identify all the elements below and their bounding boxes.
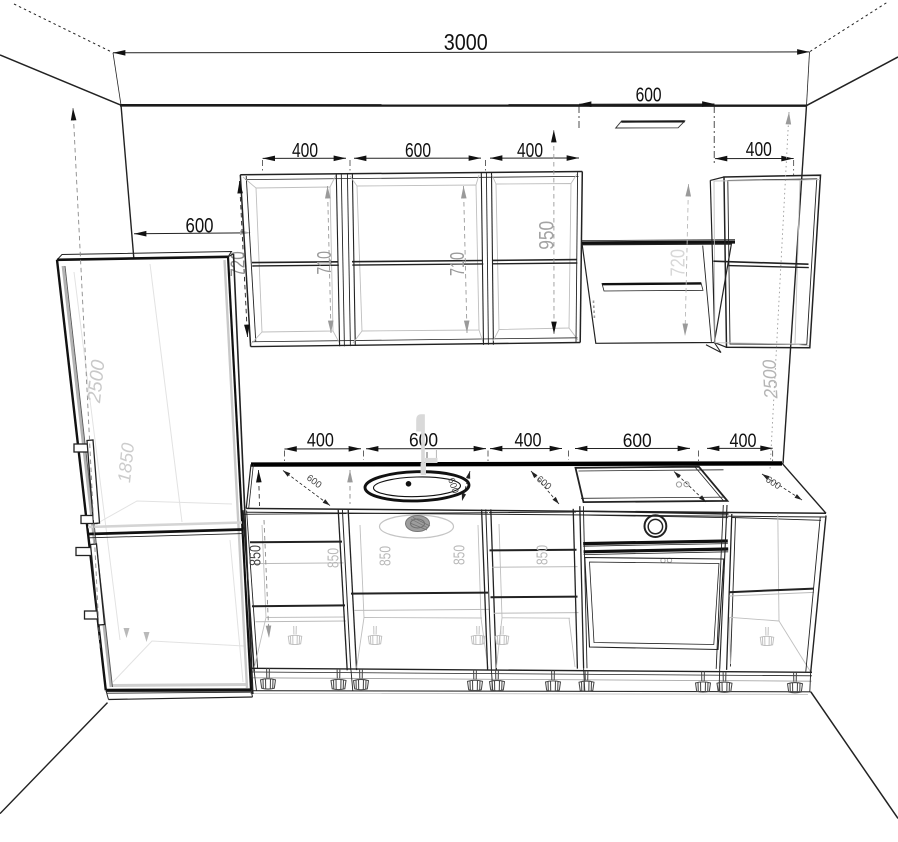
svg-text:400: 400	[515, 430, 542, 451]
svg-text:850: 850	[378, 546, 395, 566]
svg-text:2500: 2500	[759, 359, 782, 400]
svg-text:850: 850	[326, 548, 343, 568]
svg-text:850: 850	[248, 545, 265, 566]
svg-text:720: 720	[668, 249, 690, 277]
svg-text:400: 400	[730, 431, 757, 452]
svg-text:710: 710	[447, 252, 469, 276]
svg-text:600: 600	[186, 214, 214, 237]
svg-text:400: 400	[746, 139, 772, 161]
svg-text:1850: 1850	[114, 442, 138, 484]
svg-text:400: 400	[517, 140, 543, 162]
svg-text:710: 710	[314, 251, 336, 275]
svg-text:950: 950	[535, 221, 558, 250]
svg-text:400: 400	[292, 140, 318, 162]
svg-text:400: 400	[307, 431, 334, 452]
svg-text:3000: 3000	[444, 29, 488, 55]
svg-text:600: 600	[636, 85, 662, 107]
svg-text:600: 600	[623, 431, 652, 452]
svg-text:850: 850	[452, 545, 469, 565]
svg-text:850: 850	[535, 545, 552, 565]
svg-text:600: 600	[405, 140, 431, 162]
